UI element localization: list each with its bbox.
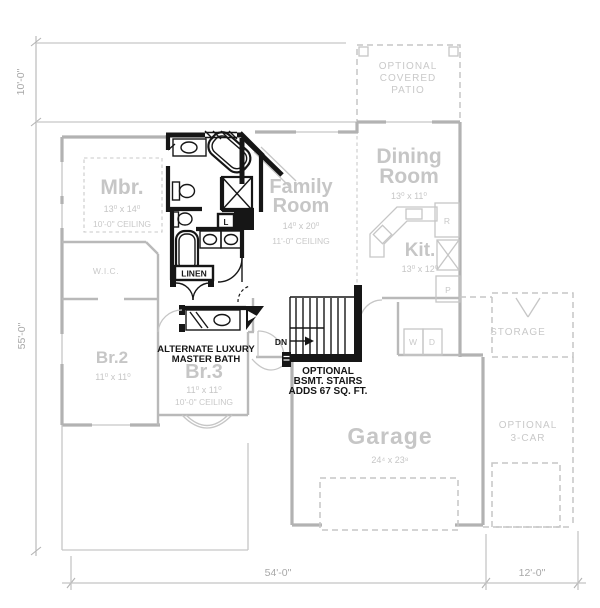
patio-label-1: OPTIONAL bbox=[379, 61, 438, 72]
lower-vanity bbox=[158, 305, 264, 332]
family-ceiling: 11'-0" CEILING bbox=[272, 236, 329, 246]
br2-name: Br.2 bbox=[96, 348, 128, 367]
mbr-ceiling: 10'-0" CEILING bbox=[93, 219, 151, 229]
dining-name-2: Room bbox=[379, 165, 439, 188]
optional-basement-stairs: DN OPTIONAL BSMT. STAIRS ADDS 67 SQ. FT. bbox=[275, 285, 368, 397]
kitchen-name: Kit. bbox=[405, 240, 436, 261]
linen-label: LINEN bbox=[181, 269, 207, 279]
family-name-2: Room bbox=[273, 195, 330, 217]
optional-storage-3car: STORAGE OPTIONAL 3-CAR bbox=[460, 293, 573, 527]
storage-label: STORAGE bbox=[490, 327, 546, 338]
shower bbox=[222, 177, 254, 210]
dim-bottom-main: 54'-0" bbox=[265, 567, 292, 579]
dryer-label: D bbox=[429, 337, 435, 347]
alt-bath-annotation-2: MASTER BATH bbox=[172, 354, 241, 365]
kitchen-fixtures: R P W D bbox=[370, 203, 460, 355]
three-car-label-2: 3-CAR bbox=[510, 433, 545, 444]
wic-label: W.I.C. bbox=[93, 266, 119, 276]
linen-short-label: L bbox=[224, 218, 229, 227]
kitchen-size: 13⁰ x 12⁰ bbox=[402, 264, 439, 274]
stair-treads bbox=[290, 298, 345, 354]
family-size: 14⁰ x 20⁰ bbox=[283, 221, 320, 231]
refrigerator-label: R bbox=[444, 216, 450, 226]
floor-plan-drawing: 10'-0" 55'-0" 54'-0" 12'-0" OPTIONAL COV… bbox=[0, 0, 600, 608]
dimension-lines: 10'-0" 55'-0" 54'-0" 12'-0" bbox=[15, 36, 586, 590]
patio-label-3: PATIO bbox=[391, 85, 425, 96]
br2-size: 11⁰ x 11⁰ bbox=[95, 372, 131, 382]
bsmt-annotation-3: ADDS 67 SQ. FT. bbox=[289, 386, 368, 397]
mbr-name: Mbr. bbox=[100, 176, 143, 199]
washer-label: W bbox=[409, 337, 417, 347]
dining-size: 13⁰ x 11⁰ bbox=[391, 191, 427, 201]
garage-name: Garage bbox=[347, 423, 432, 449]
dim-bottom-right: 12'-0" bbox=[519, 567, 546, 579]
patio-label-2: COVERED bbox=[380, 73, 436, 84]
mbr-size: 13⁰ x 14⁰ bbox=[104, 204, 141, 214]
alternate-master-bath: L LINEN bbox=[157, 128, 264, 365]
down-label: DN bbox=[275, 337, 287, 347]
br3-size: 11⁰ x 11⁰ bbox=[186, 385, 222, 395]
garage-size: 24⁴ x 23⁸ bbox=[371, 455, 408, 465]
floor-plan-page: 10'-0" 55'-0" 54'-0" 12'-0" OPTIONAL COV… bbox=[0, 0, 600, 608]
dim-left-upper: 10'-0" bbox=[15, 68, 27, 95]
br3-ceiling: 10'-0" CEILING bbox=[175, 397, 233, 407]
dim-left-main: 55'-0" bbox=[16, 322, 28, 349]
three-car-label-1: OPTIONAL bbox=[499, 420, 558, 431]
optional-covered-patio: OPTIONAL COVERED PATIO bbox=[36, 43, 460, 122]
pantry-label: P bbox=[445, 285, 451, 295]
